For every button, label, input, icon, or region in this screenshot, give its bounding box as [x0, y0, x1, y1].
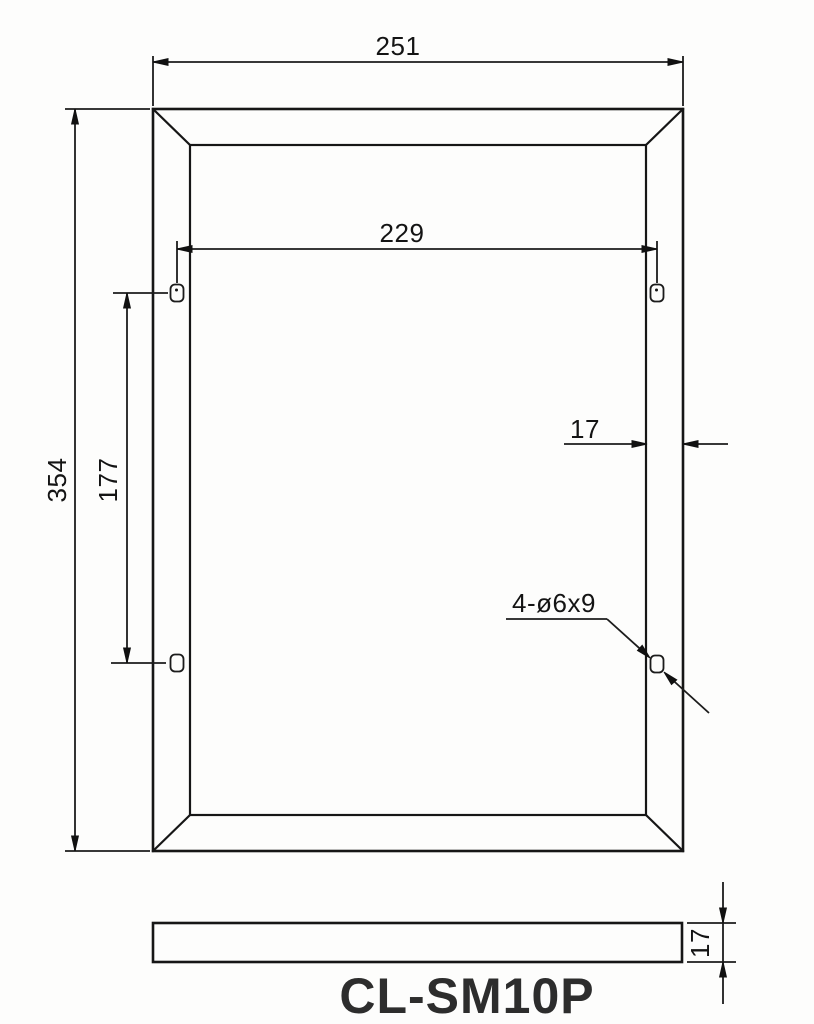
- arrowhead-right: [668, 59, 683, 66]
- mounting-hole-top-right: [651, 285, 664, 302]
- miter-line-bottom-right: [646, 815, 683, 851]
- arrowhead-left-pointing: [683, 441, 698, 448]
- arrowhead-bottom: [72, 836, 79, 851]
- dim-text-hole-span-height: 177: [93, 458, 123, 503]
- hole-dot: [175, 289, 178, 292]
- arrowhead-right: [642, 246, 657, 253]
- dim-text-frame-face: 17: [570, 414, 600, 444]
- profile-rect: [153, 923, 682, 962]
- miter-line-top-right: [646, 109, 683, 145]
- dimension-hole-span-width: 229: [177, 218, 657, 283]
- mounting-hole-top-left: [171, 285, 184, 302]
- arrowhead-left: [177, 246, 192, 253]
- hole-callout: 4-ø6x9: [506, 588, 709, 713]
- drawing-sheet: 251 229 354 177: [0, 0, 814, 1024]
- arrowhead-down-pointing: [720, 908, 727, 923]
- arrowhead-bottom: [124, 648, 131, 663]
- dim-text-overall-height: 354: [42, 458, 72, 503]
- hole-outline: [171, 655, 184, 672]
- dim-text-hole-span-width: 229: [380, 218, 425, 248]
- arrowhead-right-pointing: [632, 441, 647, 448]
- arrowhead-top: [72, 109, 79, 124]
- miter-line-top-left: [153, 109, 190, 145]
- hole-outline: [651, 656, 664, 673]
- dim-text-thickness: 17: [685, 928, 715, 958]
- hole-dot: [655, 289, 658, 292]
- arrowhead-left: [153, 59, 168, 66]
- technical-drawing: 251 229 354 177: [0, 0, 814, 1024]
- hole-outline: [651, 285, 664, 302]
- mounting-hole-bottom-right: [651, 656, 664, 673]
- dim-text-overall-width: 251: [376, 31, 421, 61]
- mounting-hole-bottom-left: [171, 655, 184, 672]
- dimension-overall-width: 251: [153, 31, 683, 106]
- arrowhead-top: [124, 293, 131, 308]
- callout-text: 4-ø6x9: [512, 588, 596, 618]
- miter-line-bottom-left: [153, 815, 190, 851]
- dimension-hole-span-height: 177: [93, 293, 168, 663]
- hole-outline: [171, 285, 184, 302]
- model-title: CL-SM10P: [339, 968, 594, 1024]
- arrowhead-up-pointing: [720, 962, 727, 977]
